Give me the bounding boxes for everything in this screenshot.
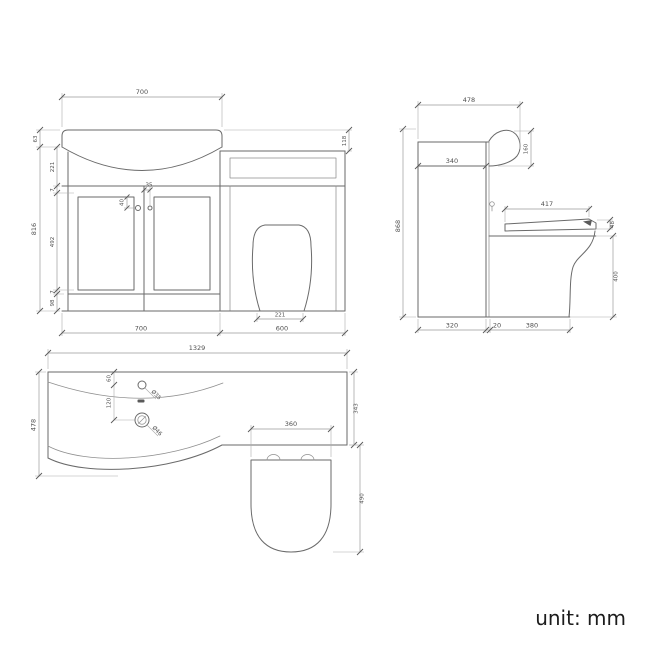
plan-front-inner-arc bbox=[48, 436, 220, 458]
dim-label-tap-setback: 60 bbox=[107, 375, 113, 382]
side-view: 478 868 340 160 417 48 bbox=[394, 96, 620, 333]
ext-lines bbox=[251, 425, 331, 457]
dim-label-tap-hole-diameter: Ø35 bbox=[150, 388, 163, 401]
dim-seat-length: 417 bbox=[502, 200, 592, 222]
dim-label-gap: 20 bbox=[493, 322, 501, 330]
dim-label-seat-width: 360 bbox=[285, 420, 297, 428]
dim-plan-overall-width: 1329 bbox=[45, 344, 350, 369]
dim-label-plan-overall-width: 1329 bbox=[189, 344, 206, 352]
dim-label-tap-to-waste: 120 bbox=[107, 397, 113, 408]
dim-label-top-width: 700 bbox=[136, 88, 148, 96]
plan-basin-bowl-arc bbox=[48, 382, 223, 398]
dim-label-rim-height: 63 bbox=[33, 135, 39, 142]
dim-label-pan-depth: 380 bbox=[526, 322, 538, 330]
dim-front-top-width: 700 bbox=[59, 88, 225, 127]
dim-front-bottom-widths: 700 600 bbox=[59, 313, 348, 336]
side-basin-profile bbox=[489, 130, 520, 166]
dim-label-knob-drop: 40 bbox=[120, 199, 126, 206]
ext-lines bbox=[48, 349, 347, 369]
dim-label-plan-vanity-depth: 478 bbox=[30, 419, 38, 431]
seat-hinge-right bbox=[301, 455, 314, 460]
ext-lines bbox=[62, 93, 222, 127]
dim-label-door-height: 492 bbox=[50, 237, 56, 248]
dim-label-seat-projection: 490 bbox=[360, 493, 366, 504]
tap-hole bbox=[138, 381, 146, 389]
dim-front-overall-height: 63 816 bbox=[30, 127, 60, 314]
dim-plan-vanity-depth: 478 bbox=[30, 369, 119, 479]
waste-slot bbox=[139, 417, 146, 424]
plan-geometry bbox=[48, 372, 347, 552]
dim-seat-thickness: 48 bbox=[597, 217, 616, 232]
overflow-slot bbox=[138, 400, 145, 403]
dim-label-ledge-depth: 340 bbox=[446, 157, 458, 165]
ext-lines bbox=[35, 372, 118, 476]
dim-plan-wc-depth: 343 bbox=[349, 369, 360, 448]
dim-label-overall-height: 816 bbox=[30, 223, 38, 235]
dim-side-overall-height: 868 bbox=[394, 126, 416, 320]
side-geometry bbox=[418, 130, 596, 317]
dim-side-bottom-depths: 320 20 380 bbox=[415, 319, 573, 333]
front-geometry bbox=[62, 130, 345, 311]
flush-panel bbox=[230, 158, 336, 178]
dim-label-cabinet-width: 700 bbox=[135, 325, 147, 333]
technical-drawing: 700 63 816 221 7 492 7 98 118 bbox=[0, 0, 650, 650]
ext-lines bbox=[36, 130, 60, 311]
dim-label-plinth-height: 98 bbox=[50, 299, 56, 306]
side-seat bbox=[505, 219, 596, 231]
dim-wc-top-height: 118 bbox=[224, 127, 352, 154]
seat-hinge-left bbox=[267, 455, 280, 460]
door-left bbox=[78, 197, 134, 290]
plan-seat-outline bbox=[251, 460, 331, 552]
dim-label-trim-top: 7 bbox=[50, 188, 56, 192]
dim-label-basin-height: 160 bbox=[524, 143, 530, 154]
ext-lines bbox=[62, 313, 345, 336]
dim-label-seat-length: 417 bbox=[541, 200, 553, 208]
dim-front-height-segments: 221 7 492 7 98 bbox=[50, 144, 74, 314]
dim-label-pan-height: 400 bbox=[614, 271, 620, 282]
unit-label: unit: mm bbox=[535, 606, 626, 630]
dim-pan-height: 400 bbox=[571, 233, 620, 320]
dim-label-wc-unit-width: 600 bbox=[276, 325, 288, 333]
basin-counter bbox=[62, 130, 222, 147]
front-view: 700 63 816 221 7 492 7 98 118 bbox=[30, 88, 352, 336]
door-right bbox=[154, 197, 210, 290]
seat-hinge-pin bbox=[490, 202, 495, 207]
dim-label-bowl-depth: 221 bbox=[50, 162, 56, 173]
knob-right bbox=[148, 206, 152, 210]
dim-label-overall-depth: 478 bbox=[463, 96, 475, 104]
dim-label-waste-diameter: Ø46 bbox=[151, 424, 164, 437]
knob-left bbox=[136, 206, 141, 211]
dim-hole-diameters: Ø35 Ø46 bbox=[150, 388, 164, 437]
plan-view: 1329 478 60 120 Ø35 Ø46 343 490 bbox=[30, 344, 366, 555]
dim-label-side-overall-height: 868 bbox=[394, 220, 402, 232]
dim-seat-projection: 490 bbox=[333, 442, 366, 555]
dim-label-seat-thickness: 48 bbox=[610, 221, 616, 228]
dim-seat-width: 360 bbox=[248, 420, 334, 457]
dim-label-pan-base-width: 221 bbox=[275, 313, 286, 319]
side-pan-profile bbox=[569, 231, 595, 317]
dim-label-knob-offset: 35 bbox=[146, 183, 153, 189]
seat-nose bbox=[583, 220, 592, 226]
dim-pan-base-width: 221 bbox=[254, 313, 306, 323]
ext-lines bbox=[53, 186, 74, 294]
ext-lines bbox=[571, 236, 617, 317]
dim-label-cabinet-depth: 320 bbox=[446, 322, 458, 330]
dim-label-plan-wc-depth: 343 bbox=[354, 403, 360, 414]
dim-side-overall-depth: 478 bbox=[415, 96, 523, 149]
dim-label-trim-bottom: 7 bbox=[50, 290, 56, 294]
dim-side-ledge-depth: 340 bbox=[415, 157, 489, 169]
toilet-pan-front bbox=[252, 225, 311, 311]
basin-bowl-curve bbox=[62, 147, 222, 171]
ext-lines bbox=[224, 130, 352, 151]
dim-label-wc-top-drop: 118 bbox=[342, 135, 348, 146]
